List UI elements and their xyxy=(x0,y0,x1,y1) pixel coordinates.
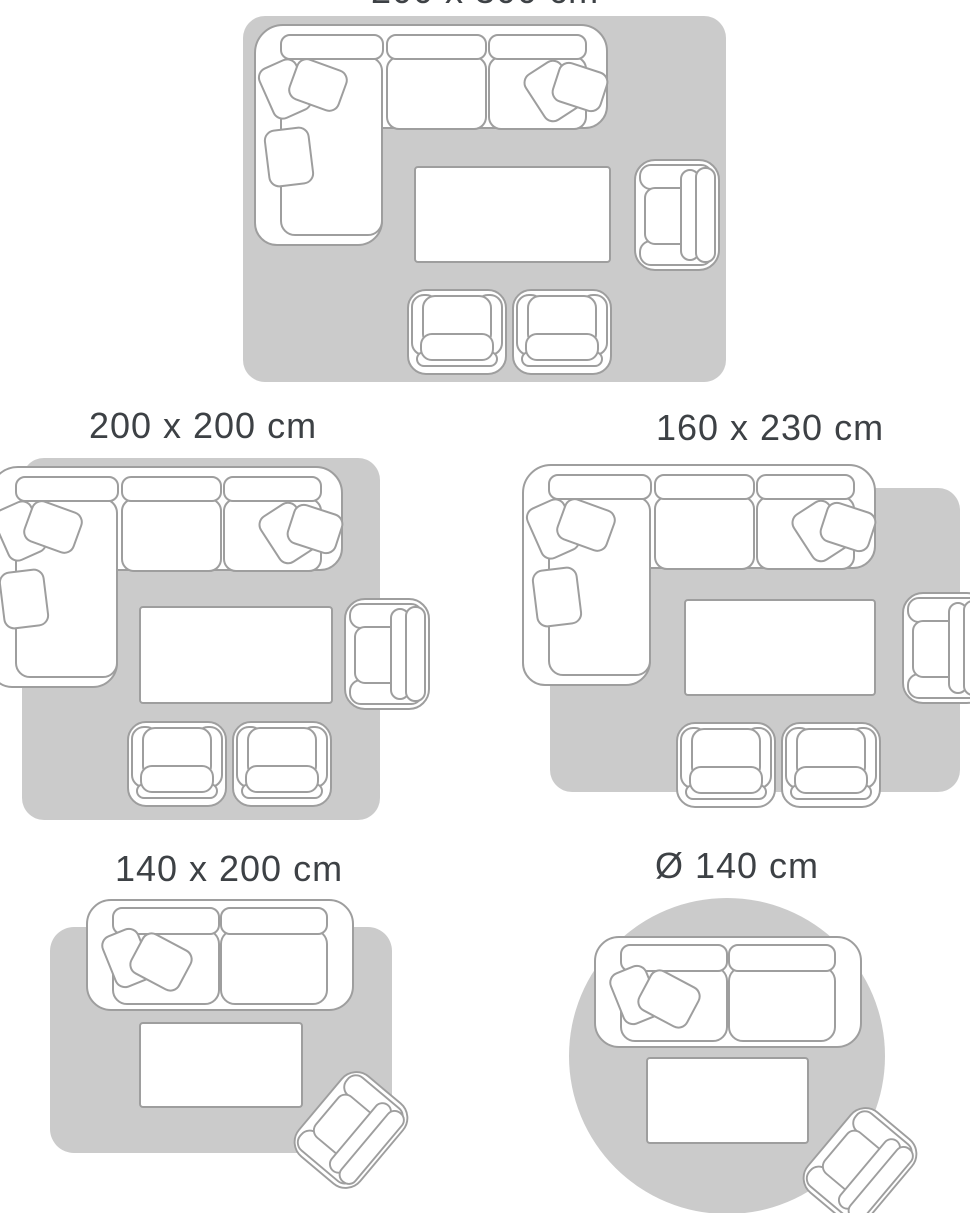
diagram-140x200 xyxy=(50,900,415,1196)
armchair-right xyxy=(233,722,331,806)
diagram-200x300 xyxy=(243,16,726,382)
rug-size-guide: 200 x 300 cm 200 x 200 cm 160 x 230 cm 1… xyxy=(0,0,970,1213)
armchair xyxy=(345,599,429,709)
diagram-200x200 xyxy=(0,458,429,820)
armchair xyxy=(903,593,970,703)
armchair-left xyxy=(408,290,506,374)
two-seater-sofa xyxy=(595,937,861,1047)
armchair xyxy=(635,160,719,270)
armchair-right xyxy=(513,290,611,374)
size-guide-graphic xyxy=(0,0,970,1213)
armchair-left xyxy=(677,723,775,807)
armchair-left xyxy=(128,722,226,806)
coffee-table xyxy=(647,1058,808,1143)
two-seater-sofa xyxy=(87,900,353,1010)
coffee-table xyxy=(140,1023,302,1107)
armchair-right xyxy=(782,723,880,807)
coffee-table xyxy=(685,600,875,695)
diagram-d140 xyxy=(569,898,924,1213)
diagram-160x230 xyxy=(523,465,970,807)
coffee-table xyxy=(415,167,610,262)
coffee-table xyxy=(140,607,332,703)
